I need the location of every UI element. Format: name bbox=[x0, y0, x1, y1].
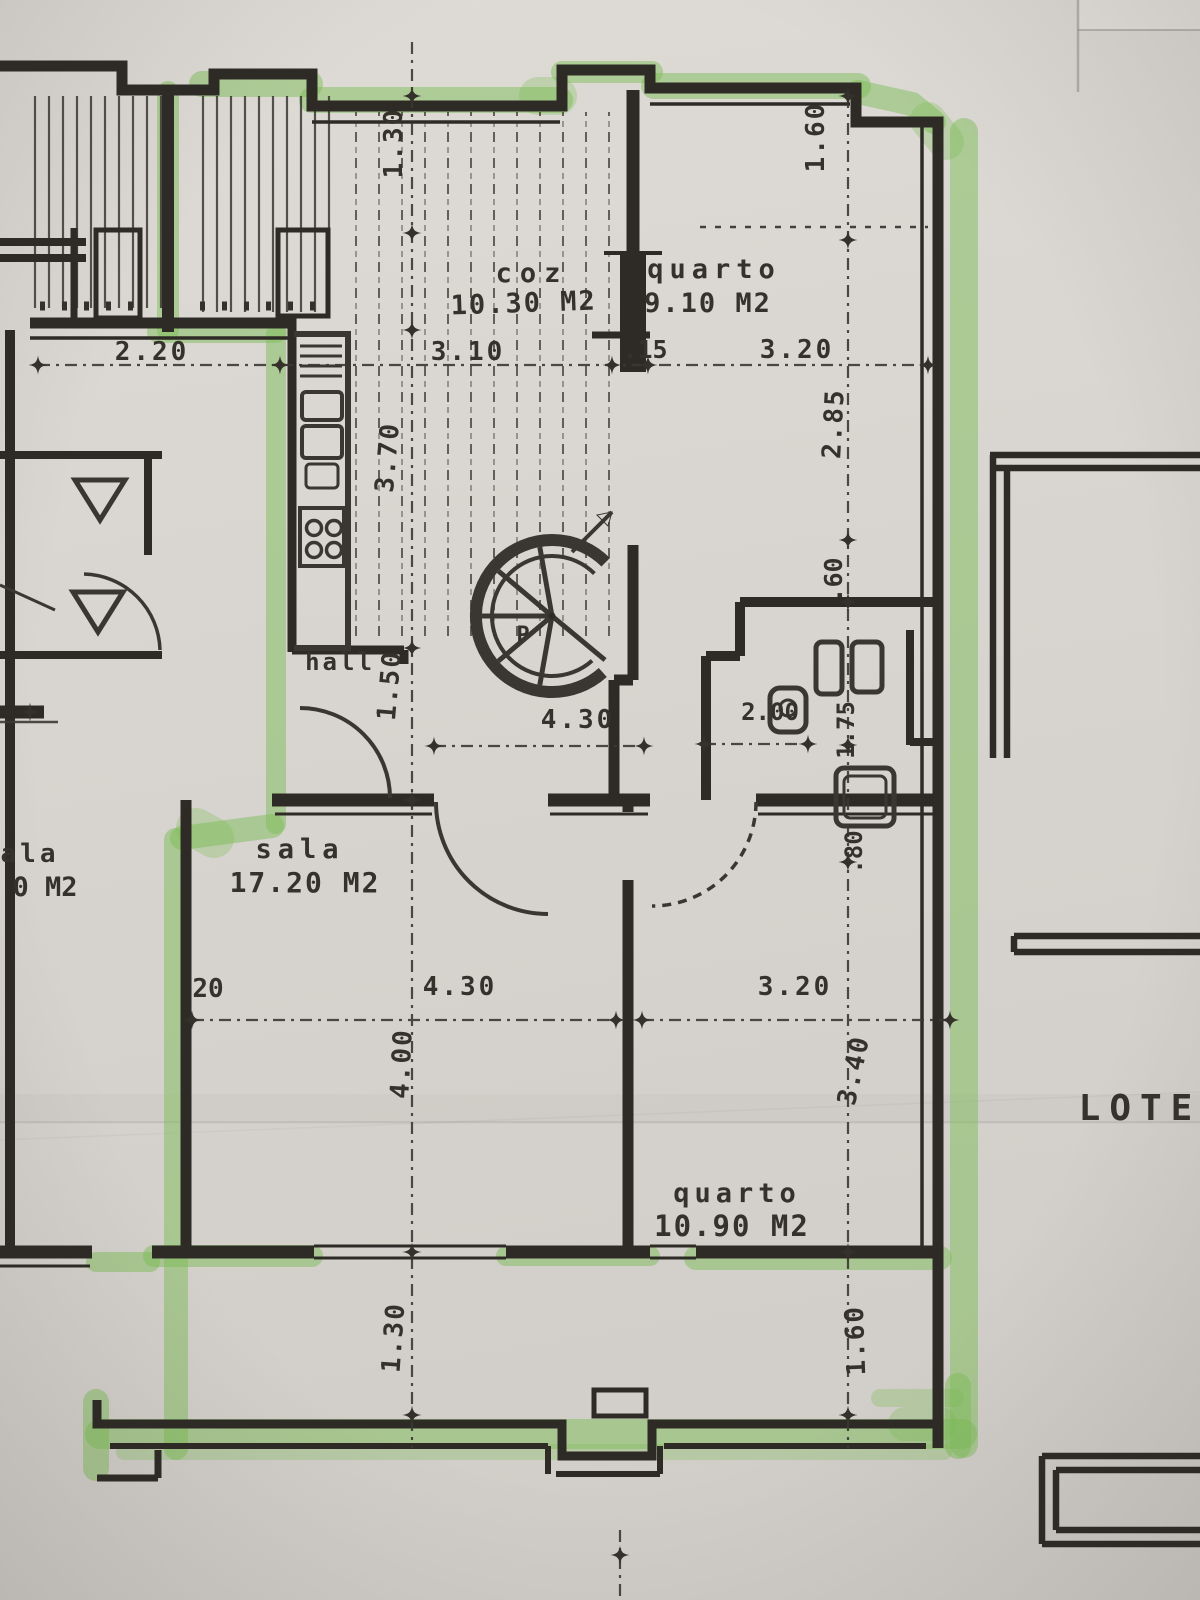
photographed-floor-plan: coz 10.30 M2 quarto 9.10 M2 2.20 3.10 .1… bbox=[0, 0, 1200, 1600]
photo-vignette bbox=[0, 0, 1200, 1600]
floor-plan-drawing: coz 10.30 M2 quarto 9.10 M2 2.20 3.10 .1… bbox=[0, 0, 1200, 1600]
